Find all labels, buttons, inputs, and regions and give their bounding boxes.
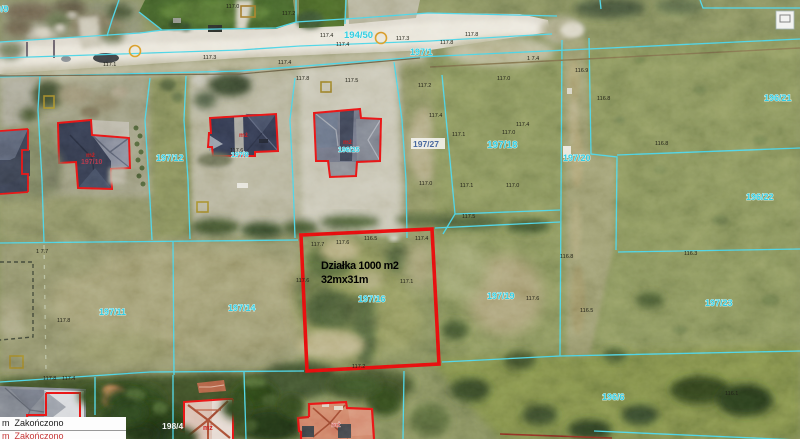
svg-text:117.2: 117.2 [418, 83, 431, 89]
svg-text:117.5: 117.5 [345, 78, 358, 84]
svg-text:117.4: 117.4 [336, 42, 349, 48]
svg-text:117.6: 117.6 [230, 148, 243, 154]
svg-text:117.0: 117.0 [497, 76, 510, 82]
svg-text:116.5: 116.5 [364, 236, 377, 242]
svg-text:117.6: 117.6 [336, 240, 349, 246]
svg-text:116.8: 116.8 [655, 141, 668, 147]
svg-text:197/14: 197/14 [228, 303, 256, 313]
svg-text:117.4: 117.4 [62, 376, 75, 382]
svg-text:117.3: 117.3 [396, 36, 409, 42]
svg-text:196/22: 196/22 [746, 192, 774, 202]
svg-text:197/19: 197/19 [487, 291, 515, 301]
svg-text:117.1: 117.1 [103, 62, 116, 68]
svg-text:117.7: 117.7 [311, 242, 324, 248]
svg-text:117.4: 117.4 [429, 113, 442, 119]
svg-text:197/27: 197/27 [413, 139, 439, 149]
svg-text:197/23: 197/23 [705, 298, 733, 308]
svg-text:117.8: 117.8 [43, 376, 56, 382]
svg-text:mż: mż [203, 425, 213, 432]
svg-text:117.4: 117.4 [320, 33, 333, 39]
svg-text:197/11: 197/11 [99, 307, 126, 317]
svg-text:197/10: 197/10 [81, 159, 103, 166]
svg-text:117.6: 117.6 [526, 296, 539, 302]
svg-text:117.4: 117.4 [278, 60, 291, 66]
svg-text:117.0: 117.0 [502, 130, 515, 136]
svg-text:117.4: 117.4 [516, 122, 529, 128]
svg-text:117.8: 117.8 [57, 318, 70, 324]
svg-text:196/25: 196/25 [338, 147, 360, 154]
svg-text:117.0: 117.0 [419, 181, 432, 187]
svg-text:117.0: 117.0 [506, 183, 519, 189]
svg-text:197/16: 197/16 [358, 294, 386, 304]
svg-text:117.2: 117.2 [282, 11, 295, 17]
svg-text:199/9: 199/9 [0, 4, 9, 14]
svg-text:117.2: 117.2 [352, 364, 365, 370]
svg-text:116.3: 116.3 [684, 251, 697, 257]
svg-text:116.1: 116.1 [725, 391, 738, 397]
svg-text:194/50: 194/50 [344, 30, 373, 41]
svg-text:117.1: 117.1 [452, 132, 465, 138]
svg-text:117.6: 117.6 [296, 278, 309, 284]
svg-text:mż: mż [343, 139, 353, 146]
svg-text:Działka 1000 m2: Działka 1000 m2 [321, 260, 399, 272]
svg-text:196/21: 196/21 [764, 93, 792, 103]
svg-text:116.8: 116.8 [597, 96, 610, 102]
svg-text:117.8: 117.8 [465, 32, 478, 38]
svg-text:117.0: 117.0 [226, 4, 239, 10]
svg-text:116.5: 116.5 [580, 308, 593, 314]
svg-text:197/20: 197/20 [563, 153, 591, 163]
svg-text:117.3: 117.3 [203, 55, 216, 61]
svg-text:1 7.7: 1 7.7 [36, 249, 48, 255]
svg-text:197/12: 197/12 [156, 153, 184, 163]
svg-text:mż: mż [86, 152, 96, 159]
svg-text:198/4: 198/4 [162, 421, 184, 431]
svg-text:mż: mż [331, 422, 341, 429]
svg-text:mż: mż [239, 132, 249, 139]
svg-text:1 7.4: 1 7.4 [527, 56, 539, 62]
svg-text:117.5: 117.5 [462, 214, 475, 220]
svg-text:116.9: 116.9 [575, 68, 588, 74]
svg-text:32mx31m: 32mx31m [321, 274, 368, 286]
svg-text:116.8: 116.8 [560, 254, 573, 260]
svg-text:117.8: 117.8 [440, 40, 453, 46]
svg-text:197/1: 197/1 [410, 47, 433, 57]
svg-text:196/6: 196/6 [602, 392, 625, 402]
svg-text:117.8: 117.8 [296, 76, 309, 82]
svg-text:117.1: 117.1 [400, 279, 413, 285]
svg-text:117.1: 117.1 [460, 183, 473, 189]
svg-text:197/18: 197/18 [487, 140, 518, 151]
svg-text:117.4: 117.4 [415, 236, 428, 242]
